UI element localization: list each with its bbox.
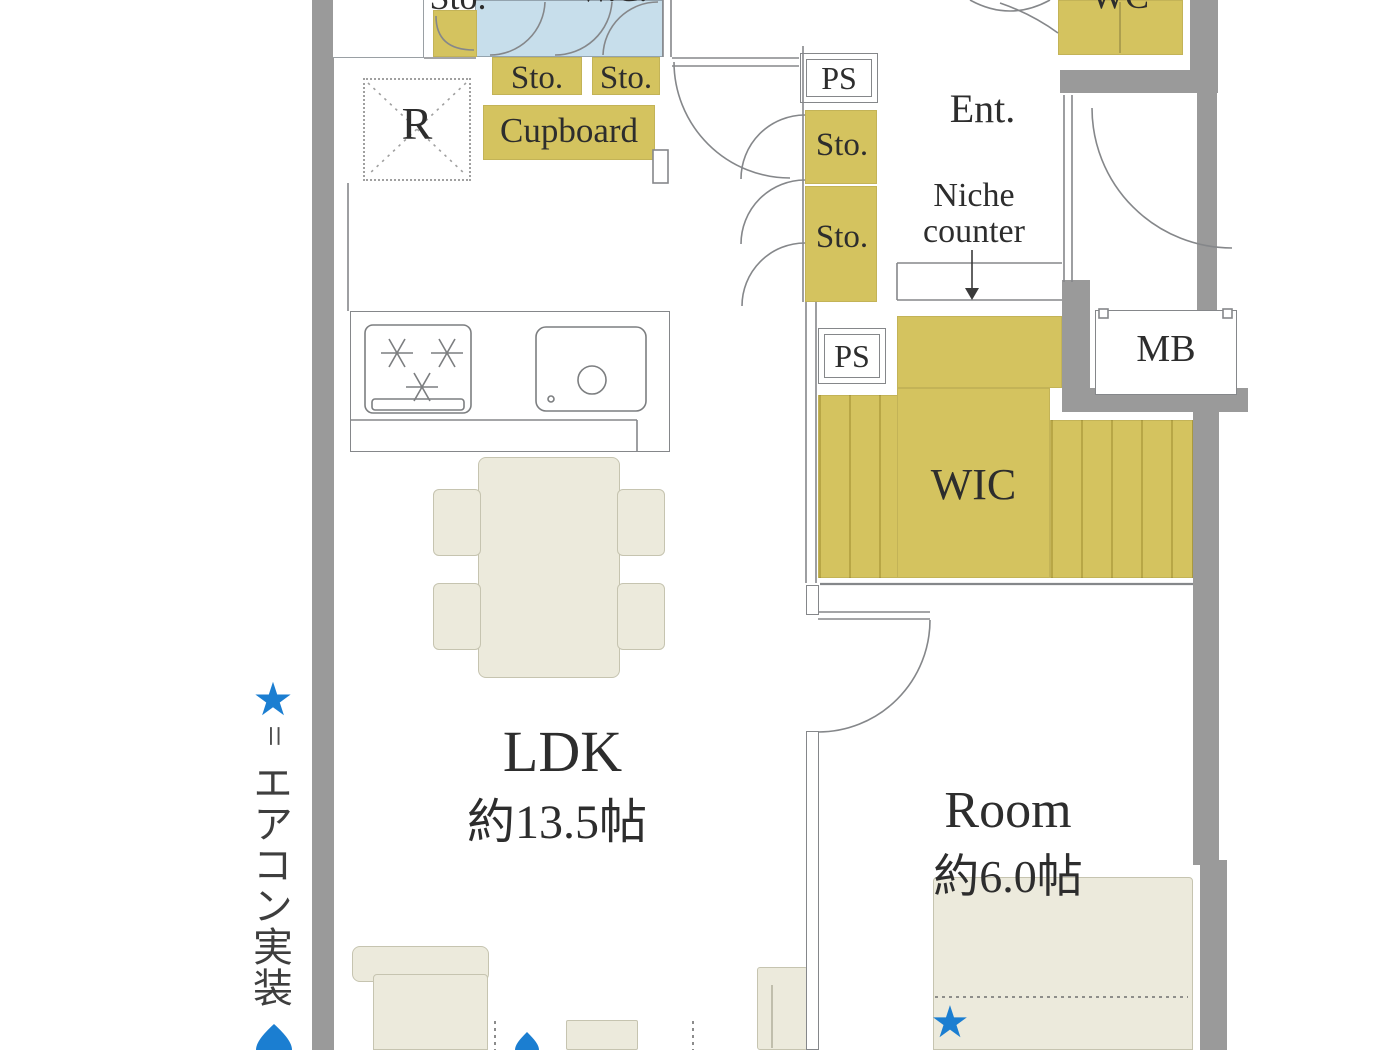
refrigerator-label: R xyxy=(363,100,471,148)
niche-counter-line2: counter xyxy=(900,214,1048,250)
bedroom-door-leaf xyxy=(818,612,930,619)
meter-box-label: MB xyxy=(1095,330,1237,370)
closet-door-arcs xyxy=(741,115,805,306)
corridor-top-wall xyxy=(672,58,799,66)
legend-aircon-text: エアコン実装 xyxy=(254,762,298,1022)
dotted-guides xyxy=(495,997,1188,1050)
entrance-partition xyxy=(1064,95,1072,282)
entrance-door-arc xyxy=(1092,108,1232,248)
wic-left-wall xyxy=(806,302,816,583)
ldk-name: LDK xyxy=(460,722,665,783)
wic-label: WIC xyxy=(897,462,1050,508)
storage-door-line xyxy=(436,16,474,50)
floor-plan: PS PS xyxy=(0,0,1400,1050)
niche-arrow-head xyxy=(965,288,979,300)
wc-label: WC xyxy=(1070,0,1170,16)
wall-end-cap xyxy=(653,150,668,183)
hallway-storage-1-label: Sto. xyxy=(805,128,879,163)
plan-linework xyxy=(0,0,1400,1050)
kitchen-storage-1-label: Sto. xyxy=(492,61,582,96)
wc-door-arc xyxy=(1000,3,1058,33)
aircon-star-icon: ★ xyxy=(928,1000,972,1046)
bedroom-name: Room xyxy=(913,784,1103,839)
ldk-area: 約13.5帖 xyxy=(437,798,677,848)
hall-door-arc xyxy=(674,62,790,178)
washroom-right-wall xyxy=(663,0,671,57)
cupboard-label: Cupboard xyxy=(483,113,655,150)
bedroom-area: 約6.0帖 xyxy=(898,853,1118,901)
mb-hinge-left xyxy=(1099,309,1108,318)
stove-icon xyxy=(365,325,471,413)
bedroom-door-arc xyxy=(818,620,930,732)
kitchen-storage-2-label: Sto. xyxy=(592,61,660,96)
washroom-partial-label: W.C. xyxy=(563,0,663,9)
legend-arrow-icon xyxy=(256,1024,292,1050)
washroom-door-arcs xyxy=(490,2,658,55)
niche-counter-line1: Niche xyxy=(900,178,1048,214)
niche-counter-label: Niche counter xyxy=(900,178,1048,249)
niche-counter-lines xyxy=(897,263,1062,300)
top-door-arc xyxy=(970,0,1050,11)
entrance-label: Ent. xyxy=(925,88,1040,130)
counter-step xyxy=(350,420,637,452)
legend-equals: = xyxy=(254,716,294,756)
storage-top-left-label: Sto. xyxy=(413,0,503,17)
hallway-storage-2-label: Sto. xyxy=(805,220,879,255)
ldk-arrow-icon xyxy=(515,1032,539,1050)
mb-hinge-right xyxy=(1223,309,1232,318)
sink-icon xyxy=(536,327,646,411)
